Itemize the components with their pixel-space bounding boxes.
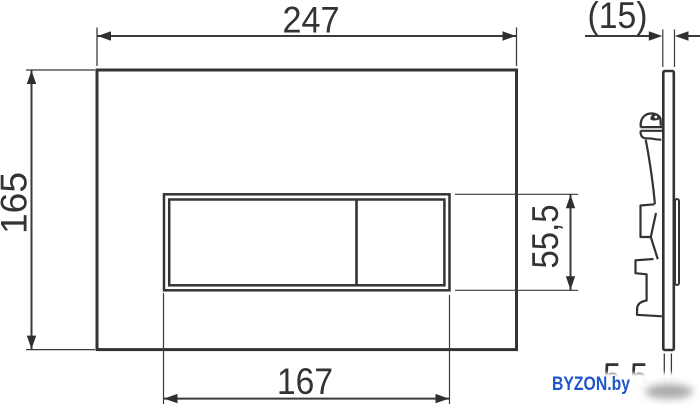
svg-text:BYZON.by: BYZON.by	[552, 374, 630, 395]
svg-text:55,5: 55,5	[525, 205, 566, 269]
svg-text:247: 247	[283, 0, 340, 41]
svg-text:165: 165	[0, 172, 35, 234]
svg-text:167: 167	[277, 361, 333, 402]
svg-text:(15): (15)	[588, 0, 648, 36]
